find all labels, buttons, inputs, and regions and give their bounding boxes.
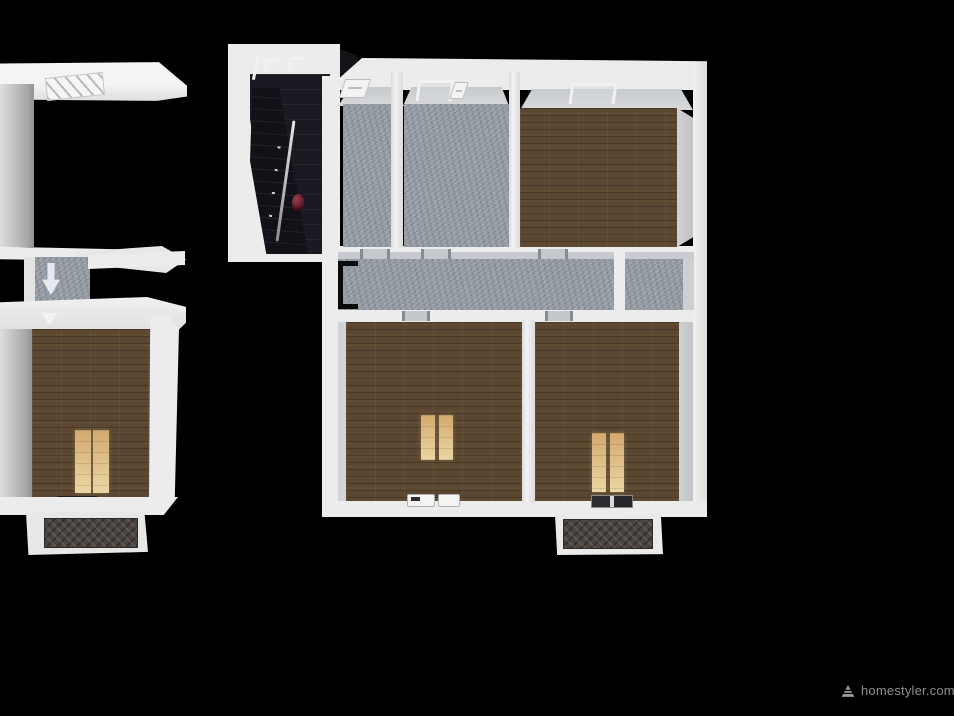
room-top-left-floor xyxy=(343,104,391,247)
wall-between-bottom-rooms xyxy=(522,320,535,503)
bedroom-top-right-floor xyxy=(520,108,677,247)
window-in-bottom-wall xyxy=(438,494,460,507)
window-glyph xyxy=(287,56,306,71)
left-wall-stub xyxy=(24,257,35,304)
left-bedroom-wall-left xyxy=(0,329,32,501)
bedroom-bottom-left-door-opening xyxy=(402,311,430,321)
left-exterior-wall-upper xyxy=(0,84,34,247)
sunlight-patch xyxy=(75,430,91,493)
watermark: homestyler.com xyxy=(841,683,954,698)
closet-wall-face-right xyxy=(683,259,694,310)
bedroom-bottom-left-floor xyxy=(346,322,522,501)
bedroom-bottom-left-wall-face-left xyxy=(338,322,346,501)
newel-red-knob xyxy=(292,194,304,211)
window-sill-dark xyxy=(411,497,420,501)
window-bracket-icon xyxy=(569,83,618,104)
window-glyph xyxy=(252,58,260,80)
sunlight-patch xyxy=(439,415,453,460)
bedroom-bottom-right-wall-face-right xyxy=(679,322,693,501)
left-bedroom-floor xyxy=(32,329,151,501)
main-right-wall xyxy=(693,62,707,517)
wall-hallway-closet xyxy=(614,248,625,311)
bedroom-top-right-wall-face-right xyxy=(677,108,693,247)
sunlight-patch xyxy=(421,415,435,460)
wall-below-hallway xyxy=(332,309,693,323)
main-porch-tile-floor xyxy=(563,519,653,549)
open-black-door-frame xyxy=(338,261,358,309)
sunlight-patch xyxy=(610,433,624,492)
room-top-middle-floor xyxy=(404,104,509,247)
stairwell-top-windows xyxy=(251,50,315,82)
wall-between-top-rooms-ab xyxy=(391,72,403,248)
bedroom-bottom-right-floor xyxy=(535,322,681,501)
hallway-floor xyxy=(338,259,614,310)
closet-floor xyxy=(625,259,683,310)
bedroom-bottom-right-door-opening xyxy=(545,311,573,321)
window-glyph xyxy=(263,58,282,73)
hallway-door-opening xyxy=(360,249,390,259)
wall-between-top-rooms-bc xyxy=(509,72,520,248)
homestyler-pyramid-icon xyxy=(841,684,855,698)
hallway-door-opening xyxy=(421,249,451,259)
dark-glass-door xyxy=(591,495,633,508)
sunlight-patch xyxy=(93,430,109,493)
floorplan-render-canvas: homestyler.com xyxy=(0,0,954,716)
left-bedroom-wall-right xyxy=(149,315,179,507)
watermark-text: homestyler.com xyxy=(861,683,954,698)
main-left-wall xyxy=(322,76,338,517)
sunlight-patch xyxy=(592,433,606,492)
left-porch-tile-floor xyxy=(44,518,138,548)
hallway-door-opening xyxy=(538,249,568,259)
